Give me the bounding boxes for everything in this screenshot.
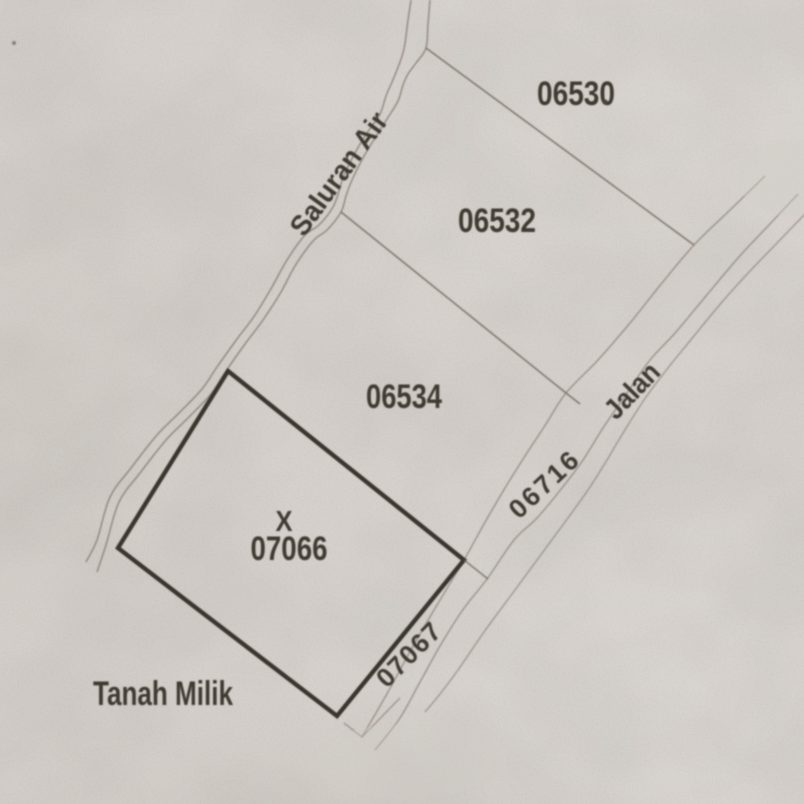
svg-text:06530: 06530 [537,75,615,113]
svg-text:06532: 06532 [458,202,536,240]
svg-text:Tanah Milik: Tanah Milik [93,675,233,713]
svg-text:06534: 06534 [366,378,442,416]
svg-text:07066: 07066 [251,530,328,568]
